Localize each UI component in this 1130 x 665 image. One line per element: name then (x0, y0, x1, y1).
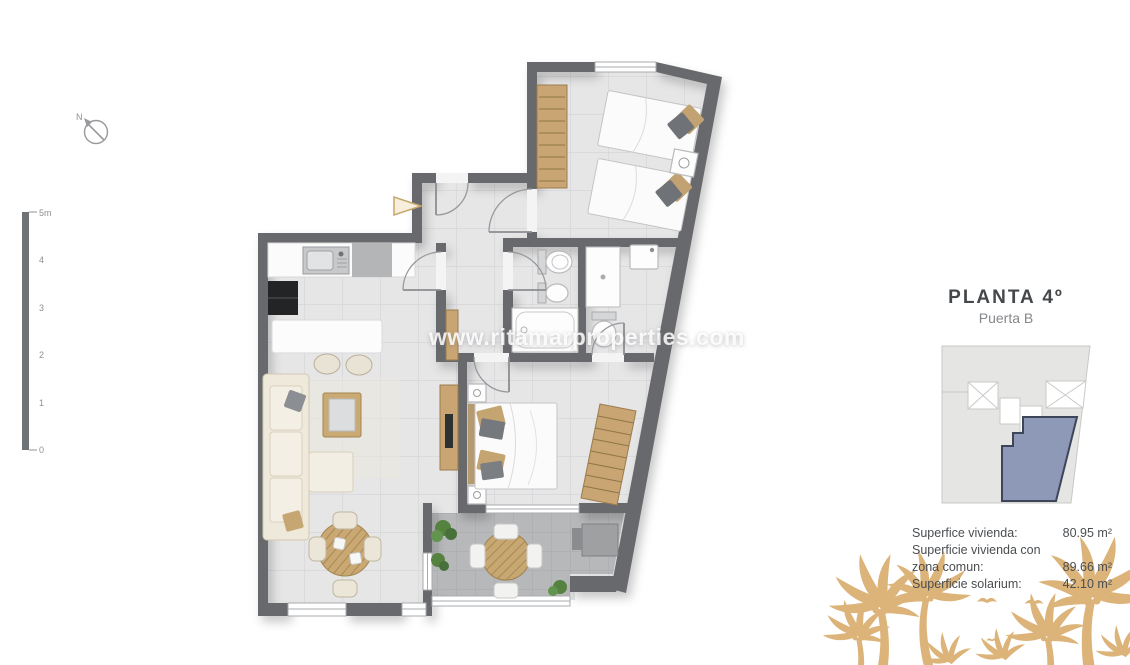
surface-label: Superfice vivienda: (912, 525, 1018, 542)
shower-tray (586, 247, 620, 307)
dining-chair (364, 537, 381, 561)
sliding-door-master-terrace (486, 505, 579, 513)
mini-floor-plan (942, 346, 1090, 503)
kitchen-oven (268, 281, 298, 315)
nightstand (468, 384, 486, 402)
kitchen-hob (352, 243, 392, 277)
bath2-door-threshold (592, 353, 624, 362)
living-door-threshold (436, 252, 446, 290)
bar-stool (346, 355, 372, 375)
page-title: PLANTA 4º (900, 287, 1112, 309)
washbasin (630, 245, 658, 269)
watermark: www.ritamarproperties.com (429, 324, 745, 351)
terrace-chair (494, 524, 518, 539)
surface-value: 89.66 m² (1063, 559, 1112, 576)
twin-wardrobe (537, 85, 567, 188)
kitchen-sink (303, 247, 349, 274)
kitchen-island (272, 320, 382, 353)
bar-stool (314, 354, 340, 374)
toilet (538, 250, 572, 274)
bidet (538, 283, 568, 303)
lightwell-icon (1046, 381, 1086, 408)
scale-label-0: 0 (39, 445, 44, 455)
window-terrace-side (423, 553, 432, 590)
nightstand (670, 149, 698, 177)
surface-row: Superficie vivienda con (912, 542, 1112, 559)
terrace-chair (527, 544, 542, 568)
dining-chair (309, 537, 326, 561)
scale-label-5m: 5m (39, 208, 52, 218)
window-living-2 (402, 603, 426, 616)
twin-door-threshold (527, 189, 537, 232)
grass-icon (975, 628, 1028, 664)
surface-value: 80.95 m² (1063, 525, 1112, 542)
surface-summary: Superfice vivienda: 80.95 m² Superficie … (912, 525, 1112, 593)
window-living-1 (288, 603, 346, 616)
front-door-threshold (436, 173, 468, 183)
lightwell-icon (968, 382, 998, 409)
coffee-table (323, 393, 361, 437)
compass-icon: N (76, 112, 108, 144)
surface-label: zona comun: (912, 559, 984, 576)
terrace-chair (494, 583, 518, 598)
scale-label-1: 1 (39, 398, 44, 408)
surface-row: Superficie solarium: 42.10 m² (912, 576, 1112, 593)
dining-chair (333, 580, 357, 597)
bath1-door-threshold (503, 252, 513, 290)
surface-value: 42.10 m² (1063, 576, 1112, 593)
compass-north-label: N (76, 112, 83, 122)
window-twin-bedroom (595, 62, 656, 72)
dining-chair (333, 512, 357, 529)
scale-label-3: 3 (39, 303, 44, 313)
surface-row: zona comun: 89.66 m² (912, 559, 1112, 576)
pillow (480, 461, 504, 481)
scale-bar: 5m 4 3 2 1 0 (22, 208, 52, 455)
double-bed (468, 403, 557, 489)
core-stairs (1000, 398, 1020, 424)
surface-label: Superficie vivienda con (912, 542, 1041, 559)
bird-icon (977, 598, 997, 603)
tv-sideboard (440, 385, 458, 470)
terrace-chair (470, 544, 485, 568)
surface-row: Superfice vivienda: 80.95 m² (912, 525, 1112, 542)
master-door-threshold (474, 353, 509, 362)
floor-plan-page: N 5m 4 3 2 1 0 (0, 0, 1130, 665)
grass-icon (1095, 625, 1130, 661)
page-subtitle: Puerta B (900, 310, 1112, 326)
scale-label-2: 2 (39, 350, 44, 360)
surface-label: Superficie solarium: (912, 576, 1022, 593)
scale-label-4: 4 (39, 255, 44, 265)
